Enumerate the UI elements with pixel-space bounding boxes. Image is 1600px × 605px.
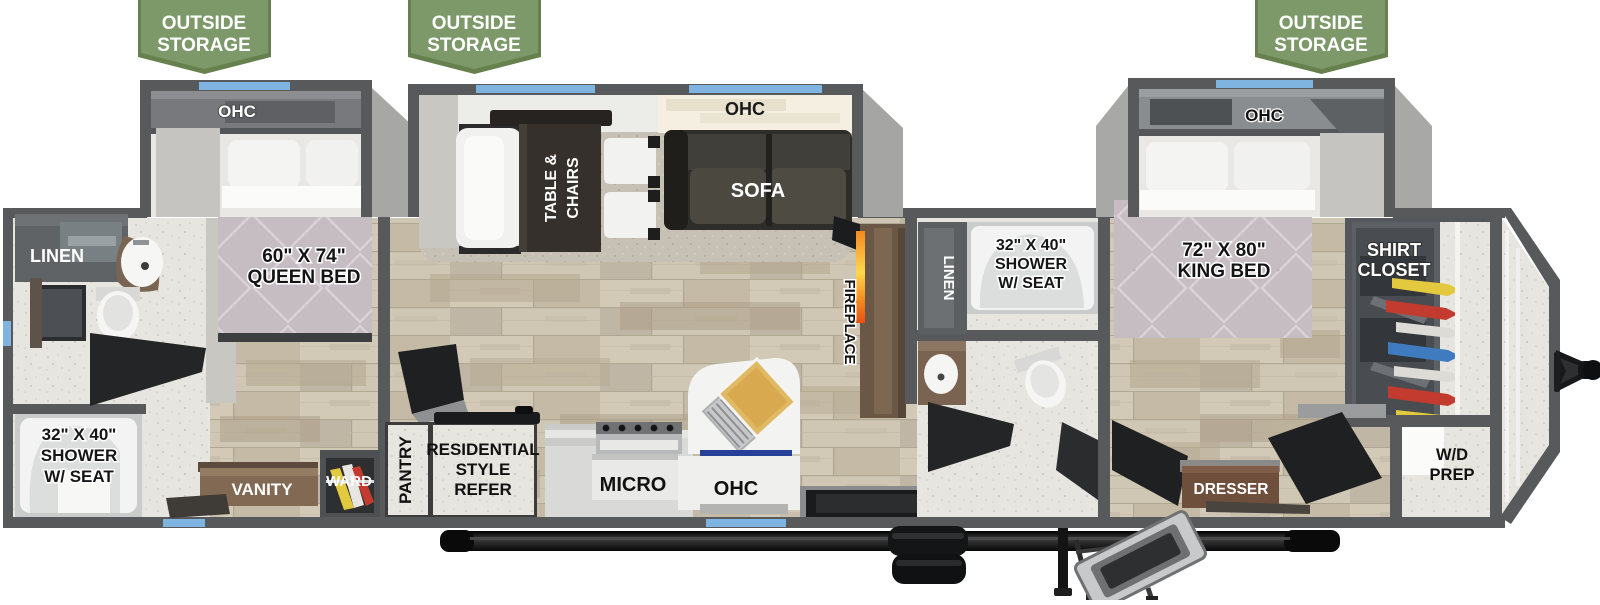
svg-text:REFER: REFER xyxy=(454,480,512,499)
svg-text:OHC: OHC xyxy=(1245,106,1283,125)
svg-text:STYLE: STYLE xyxy=(456,460,511,479)
svg-text:PANTRY: PANTRY xyxy=(396,435,415,504)
svg-text:CLOSET: CLOSET xyxy=(1357,260,1430,280)
svg-text:MICRO: MICRO xyxy=(600,474,667,496)
svg-text:CHAIRS: CHAIRS xyxy=(565,157,582,219)
svg-text:LINEN: LINEN xyxy=(30,246,84,266)
svg-text:SOFA: SOFA xyxy=(731,180,785,202)
svg-text:SHIRT: SHIRT xyxy=(1367,240,1421,260)
svg-text:FIREPLACE: FIREPLACE xyxy=(841,279,858,364)
svg-text:32" X 40": 32" X 40" xyxy=(996,237,1066,254)
svg-text:W/ SEAT: W/ SEAT xyxy=(998,275,1064,292)
svg-text:STORAGE: STORAGE xyxy=(1274,35,1368,56)
svg-text:60" X 74": 60" X 74" xyxy=(262,246,346,267)
svg-text:WARD: WARD xyxy=(326,473,372,490)
svg-text:OHC: OHC xyxy=(714,478,758,500)
svg-text:OUTSIDE: OUTSIDE xyxy=(1279,13,1363,34)
svg-text:DRESSER: DRESSER xyxy=(1194,481,1269,498)
svg-text:OHC: OHC xyxy=(218,102,256,121)
svg-text:RESIDENTIAL: RESIDENTIAL xyxy=(426,440,539,459)
svg-text:SHOWER: SHOWER xyxy=(41,446,118,465)
svg-text:TABLE &: TABLE & xyxy=(543,153,560,222)
svg-text:72" X 80": 72" X 80" xyxy=(1182,240,1266,261)
svg-text:SHOWER: SHOWER xyxy=(995,256,1067,273)
svg-text:OUTSIDE: OUTSIDE xyxy=(432,13,516,34)
svg-text:VANITY: VANITY xyxy=(231,480,293,499)
svg-text:OHC: OHC xyxy=(725,99,765,119)
svg-text:KING BED: KING BED xyxy=(1178,261,1271,282)
svg-text:OUTSIDE: OUTSIDE xyxy=(162,13,246,34)
svg-text:32" X 40": 32" X 40" xyxy=(42,425,117,444)
svg-text:STORAGE: STORAGE xyxy=(427,35,521,56)
svg-text:LINEN: LINEN xyxy=(940,256,957,301)
svg-text:STORAGE: STORAGE xyxy=(157,35,251,56)
svg-text:W/D: W/D xyxy=(1436,446,1468,464)
svg-text:PREP: PREP xyxy=(1430,466,1475,484)
svg-text:QUEEN BED: QUEEN BED xyxy=(248,267,361,288)
svg-text:W/ SEAT: W/ SEAT xyxy=(44,467,114,486)
